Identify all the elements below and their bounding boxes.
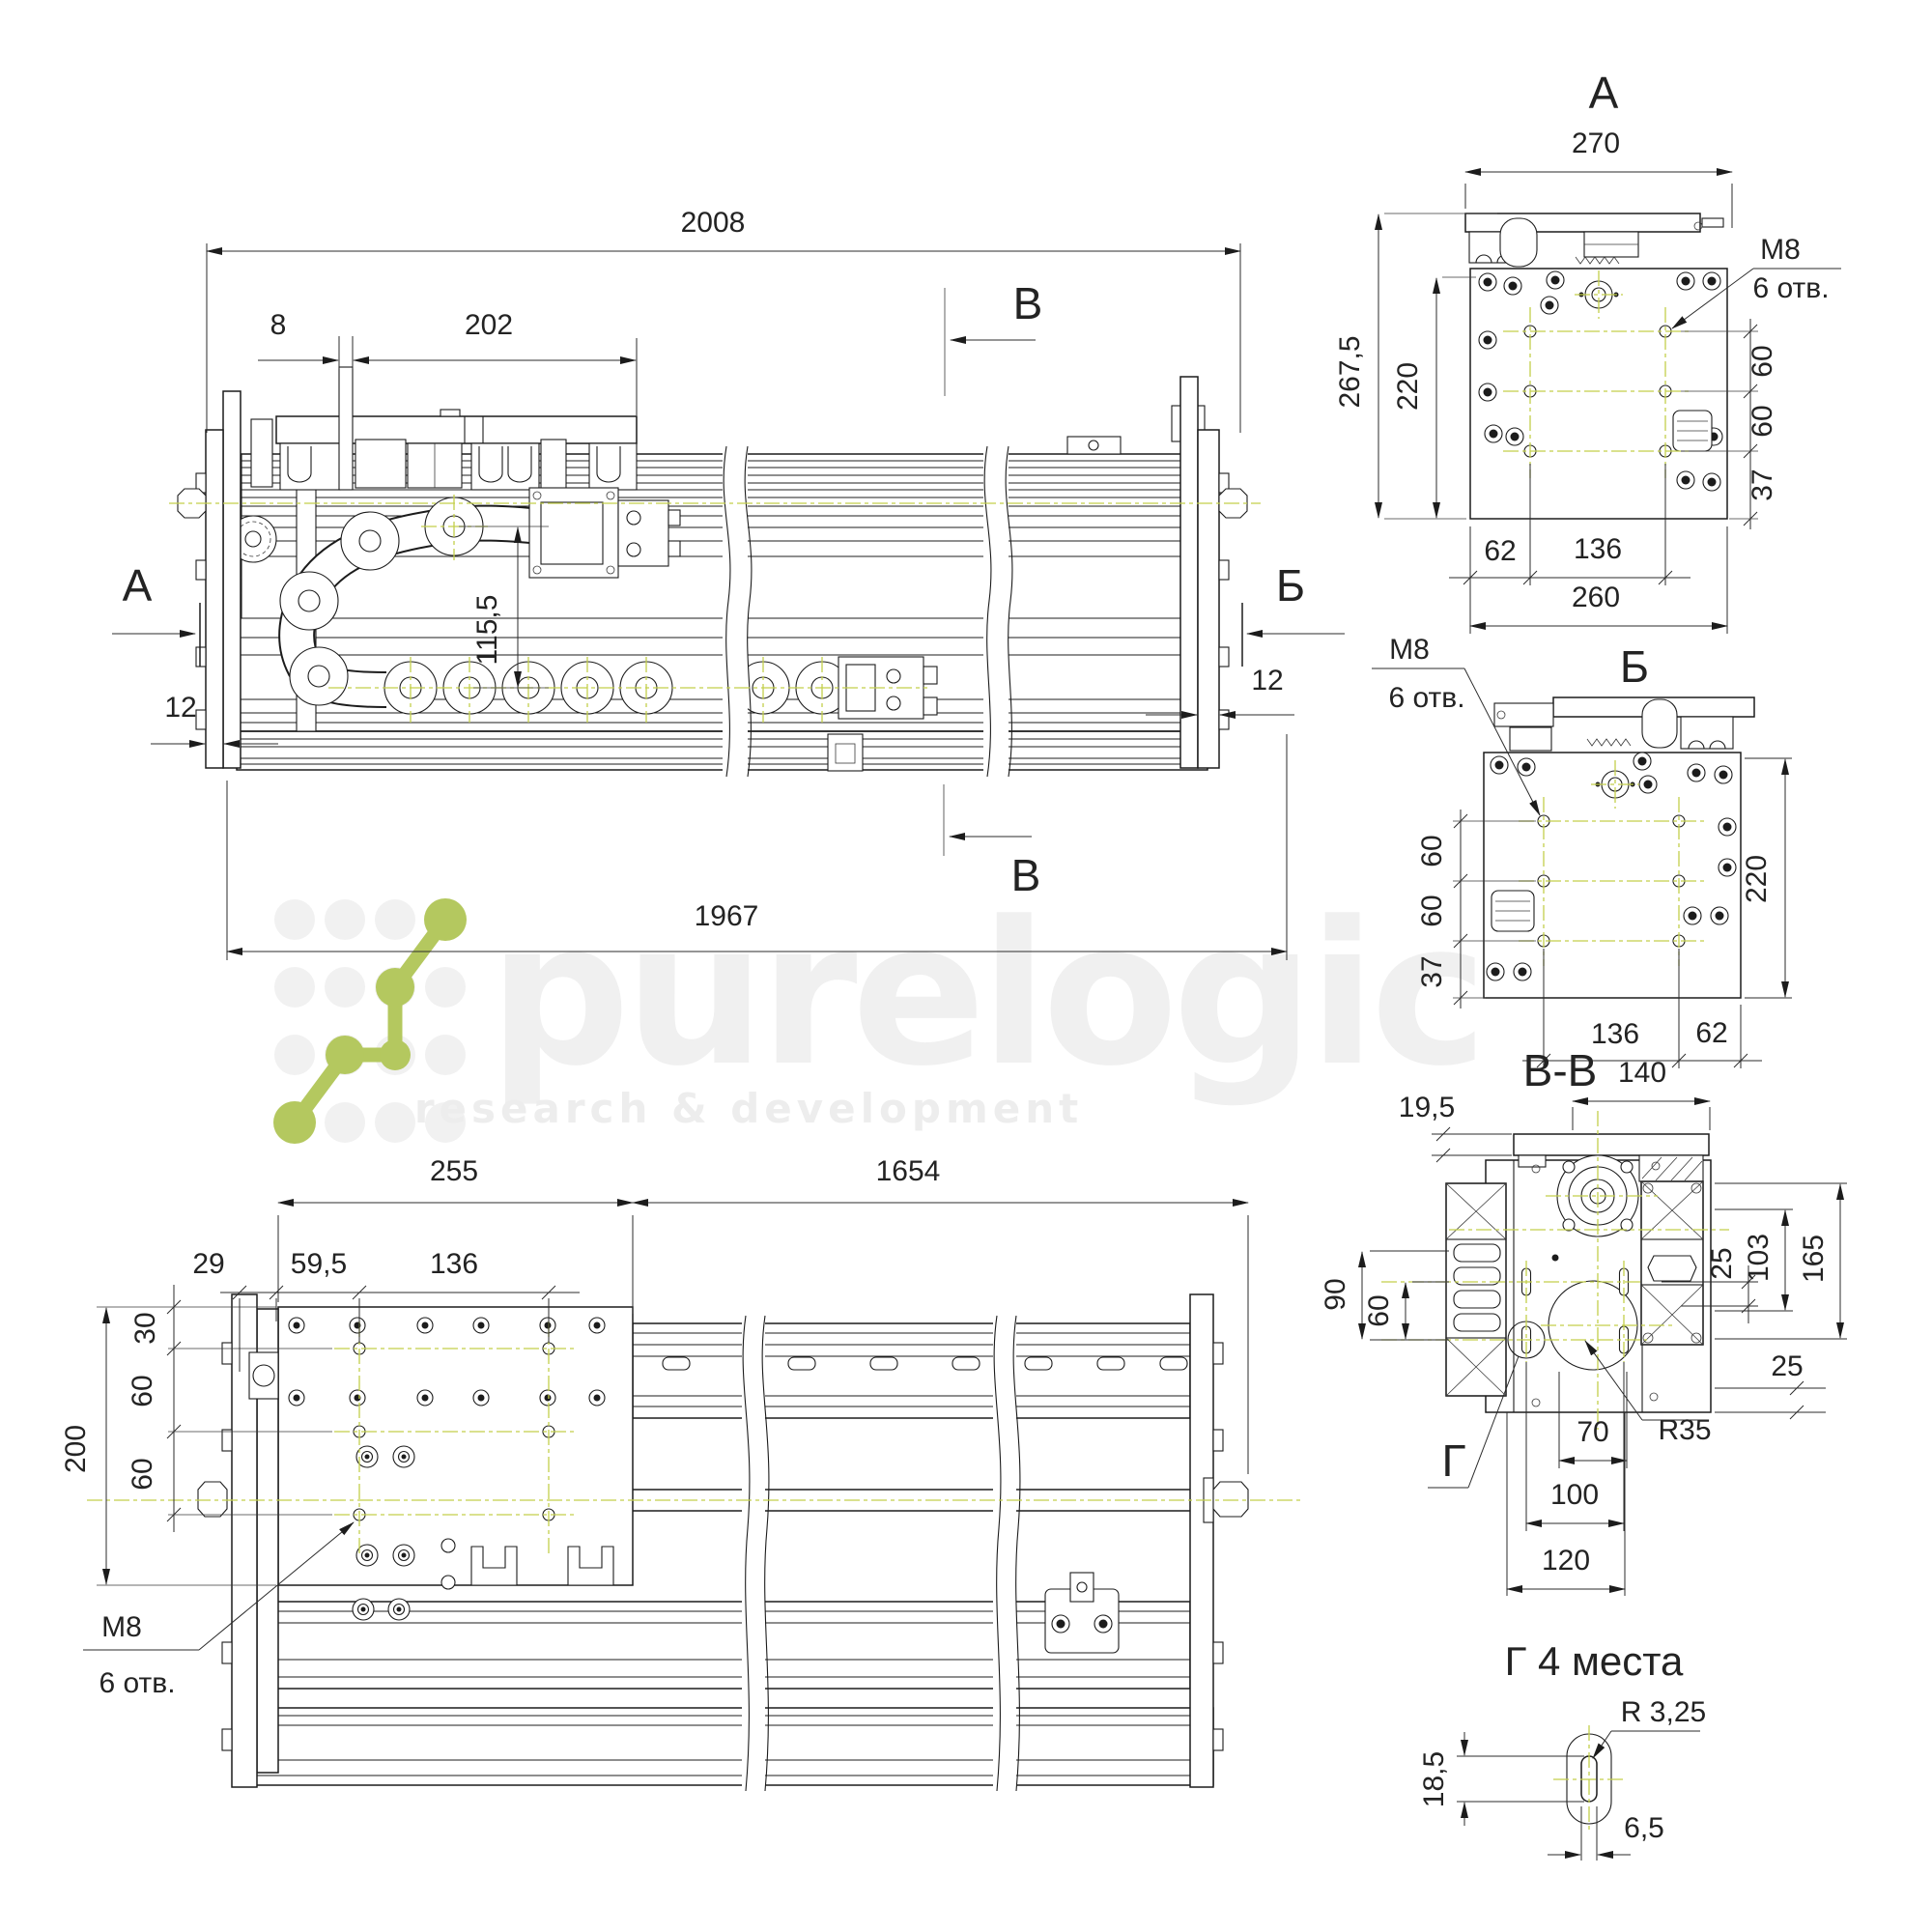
dim-s-25b: 25: [1771, 1350, 1803, 1382]
view-a-callout-m8: М8: [1760, 234, 1801, 266]
dim-s-120: 120: [1542, 1545, 1590, 1577]
dim-s-100: 100: [1550, 1479, 1599, 1511]
top-callout-holes: 6 отв.: [99, 1667, 175, 1699]
dim-b-37: 37: [1416, 955, 1448, 987]
dim-s-70: 70: [1577, 1416, 1608, 1448]
view-a-carriage: [1465, 213, 1723, 267]
front-rail-clamp: [1067, 437, 1121, 454]
dim-60a: 60: [127, 1375, 158, 1406]
dim-s-140: 140: [1618, 1057, 1666, 1089]
top-break-lines: [742, 1316, 1020, 1793]
dim-a-260: 260: [1572, 582, 1620, 613]
dim-g-18-5: 18,5: [1418, 1751, 1450, 1807]
watermark-brand: purelogic: [489, 880, 1482, 1110]
dim-a-62: 62: [1484, 535, 1516, 567]
dim-s-r35: R35: [1658, 1414, 1711, 1446]
dim-g-6-5: 6,5: [1624, 1812, 1664, 1844]
top-right-nut: [1213, 1482, 1248, 1517]
marker-b: Б: [1276, 560, 1305, 611]
view-b-callout-m8: М8: [1389, 634, 1430, 666]
view-a-title: А: [1589, 68, 1619, 118]
detail-g: Г 4 места R 3,25 18,5 6,5: [1418, 1638, 1706, 1861]
dim-s-19-5: 19,5: [1399, 1092, 1455, 1123]
dim-115-5: 115,5: [471, 595, 503, 666]
dim-29: 29: [192, 1248, 224, 1280]
view-a-callout-holes: 6 отв.: [1752, 272, 1829, 304]
dim-a-270: 270: [1572, 128, 1620, 159]
dim-12-right: 12: [1251, 665, 1283, 696]
dim-1654: 1654: [876, 1155, 941, 1187]
dim-202: 202: [465, 309, 513, 341]
marker-v-bottom: В: [1011, 850, 1041, 900]
dim-s-25a: 25: [1706, 1247, 1738, 1279]
section-right-extrusion: [1641, 1181, 1703, 1345]
dim-12-left: 12: [164, 692, 196, 724]
view-a-body: [1470, 269, 1727, 519]
dim-1967: 1967: [695, 900, 759, 932]
dim-b-220: 220: [1741, 855, 1773, 903]
dim-a-60a: 60: [1747, 345, 1778, 377]
section-left-extrusion: [1446, 1183, 1506, 1396]
view-b-body: [1484, 753, 1741, 998]
view-a: А 270 267,5: [1334, 68, 1841, 634]
top-left-bolt: [198, 1482, 227, 1517]
marker-v-top: В: [1013, 278, 1043, 328]
dim-200: 200: [60, 1425, 92, 1473]
watermark-tagline: research & development: [414, 1085, 1083, 1132]
dim-255: 255: [430, 1155, 478, 1187]
dim-s-90: 90: [1320, 1278, 1351, 1310]
detail-title: Г 4 места: [1505, 1638, 1684, 1684]
dim-a-136: 136: [1574, 533, 1622, 565]
view-b-callout-holes: 6 отв.: [1388, 682, 1464, 714]
dim-2008: 2008: [681, 207, 746, 239]
front-carriage-post: [339, 367, 353, 490]
dim-60b: 60: [127, 1458, 158, 1490]
dim-b-62: 62: [1695, 1017, 1727, 1049]
front-view: 2008 8 202 115,5 12 12 1967 А Б В В: [112, 207, 1345, 960]
view-b-title: Б: [1620, 641, 1649, 692]
section-title: В-В: [1523, 1045, 1598, 1095]
marker-a: А: [123, 560, 153, 611]
dim-g-r: R 3,25: [1621, 1696, 1706, 1728]
drawing-sheet: purelogic research & development: [0, 0, 1932, 1932]
dim-59-5: 59,5: [291, 1248, 347, 1280]
dim-a-37: 37: [1747, 469, 1778, 500]
watermark: purelogic research & development: [273, 880, 1482, 1144]
top-view: 255 1654 29 59,5 136 30 60 60 200 М8 6 о…: [60, 1155, 1304, 1793]
dim-b-60a: 60: [1416, 835, 1448, 867]
view-b-carriage: [1494, 697, 1754, 751]
dim-s-60: 60: [1363, 1294, 1395, 1326]
dim-a-267-5: 267,5: [1334, 335, 1366, 408]
section-vv: В-В: [1320, 1045, 1847, 1596]
dim-a-60b: 60: [1747, 405, 1778, 437]
dim-a-220: 220: [1392, 362, 1424, 411]
front-chain-bracket: [529, 488, 680, 578]
top-callout-m8: М8: [101, 1611, 142, 1643]
dim-8: 8: [270, 309, 287, 341]
front-foot-bracket: [828, 734, 863, 771]
front-rail-body: [225, 454, 1207, 771]
dim-30: 30: [129, 1312, 161, 1344]
top-carriage-plate: [278, 1307, 633, 1620]
dim-136-top: 136: [430, 1248, 478, 1280]
dim-s-165: 165: [1798, 1235, 1830, 1283]
cad-drawing: purelogic research & development: [0, 0, 1932, 1932]
front-break-lines: [723, 446, 1012, 777]
section-g-label: Г: [1442, 1435, 1466, 1486]
dim-s-103: 103: [1743, 1234, 1775, 1282]
dim-b-60b: 60: [1416, 895, 1448, 926]
dim-b-136: 136: [1591, 1018, 1639, 1050]
